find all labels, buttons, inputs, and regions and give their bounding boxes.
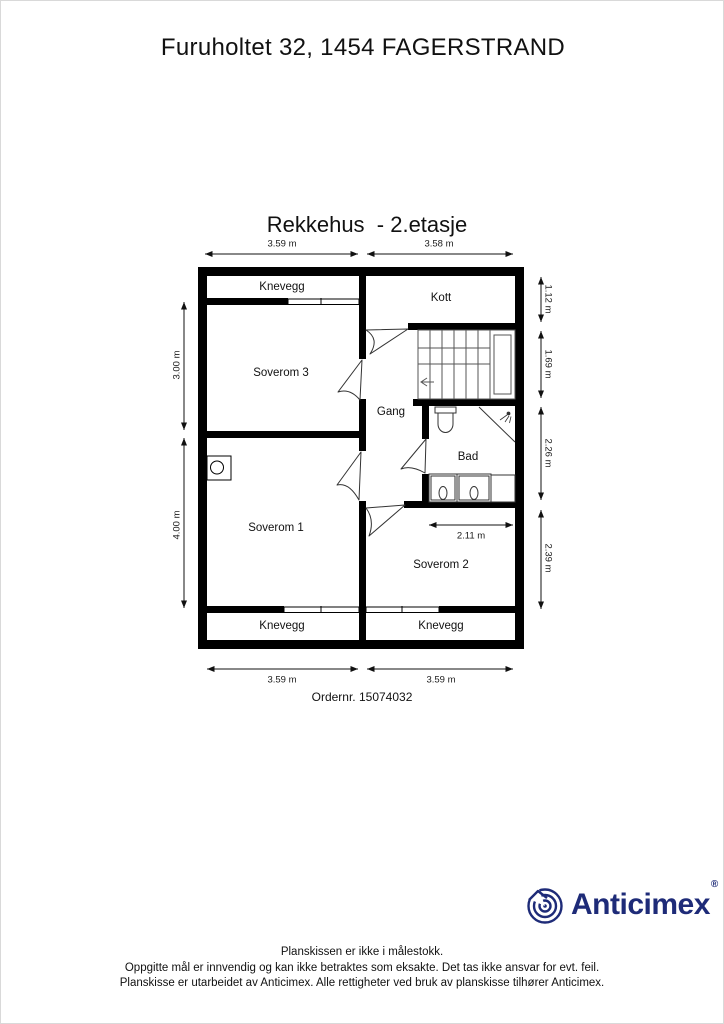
door-arc-soverom2 [366,505,405,536]
room-label-knevegg-bottom-left: Knevegg [259,620,304,632]
window-symbol [288,298,359,305]
room-label-bad: Bad [458,451,478,463]
door-arc-kott [366,329,408,354]
anticimex-logo-icon [522,883,566,927]
disclaimer-line: Planskissen er ikke i målestokk. [1,945,723,961]
dim-label-bottom-left: 3.59 m [267,675,296,686]
room-label-kott: Kott [431,292,451,304]
door-arc-soverom3 [338,360,362,400]
dim-label-right-3: 2.26 m [543,438,554,467]
dim-label-top-right: 3.58 m [424,239,453,250]
stair-direction-arrow-icon [421,378,434,386]
door-arc-bad [401,439,426,473]
disclaimer-line: Oppgitte mål er innvendig og kan ikke be… [1,961,723,977]
room-label-knevegg-bottom-right: Knevegg [418,620,463,632]
sink-icon [457,474,491,502]
anticimex-logo: Anticimex® [522,883,717,927]
dim-label-bottom-right: 3.59 m [426,675,455,686]
anticimex-logo-text: Anticimex® [571,888,717,922]
window-symbol [284,606,359,613]
window-symbol [366,606,439,613]
room-label-soverom-3: Soverom 3 [253,367,309,379]
order-number: Ordernr. 15074032 [312,690,413,704]
bathroom-cabinet [491,475,515,502]
floor-plan-drawing [1,1,724,1024]
registered-mark: ® [711,879,718,890]
room-label-gang: Gang [377,406,405,418]
shower-icon [479,407,515,442]
dim-label-right-4: 2.39 m [543,543,554,572]
dim-label-soverom2-width: 2.11 m [457,531,485,542]
room-label-soverom-2: Soverom 2 [413,559,469,571]
room-label-knevegg-top: Knevegg [259,281,304,293]
dim-label-top-left: 3.59 m [267,239,296,250]
sink-icon [429,474,457,502]
disclaimer-footer: Planskissen er ikke i målestokk. Oppgitt… [1,945,723,992]
dim-label-left-top: 3.00 m [172,350,183,379]
dim-label-left-bottom: 4.00 m [172,510,183,539]
staircase [418,330,515,399]
disclaimer-line: Planskisse er utarbeidet av Anticimex. A… [1,976,723,992]
dim-label-right-1: 1.12 m [543,284,554,313]
door-arc-soverom1 [337,452,361,500]
toilet-icon [435,407,456,433]
chimney-icon [207,456,231,480]
room-label-soverom-1: Soverom 1 [248,522,304,534]
floorplan-page: Furuholtet 32, 1454 FAGERSTRAND Rekkehus… [0,0,724,1024]
dim-label-right-2: 1.69 m [543,349,554,378]
brand-name: Anticimex [571,888,710,921]
